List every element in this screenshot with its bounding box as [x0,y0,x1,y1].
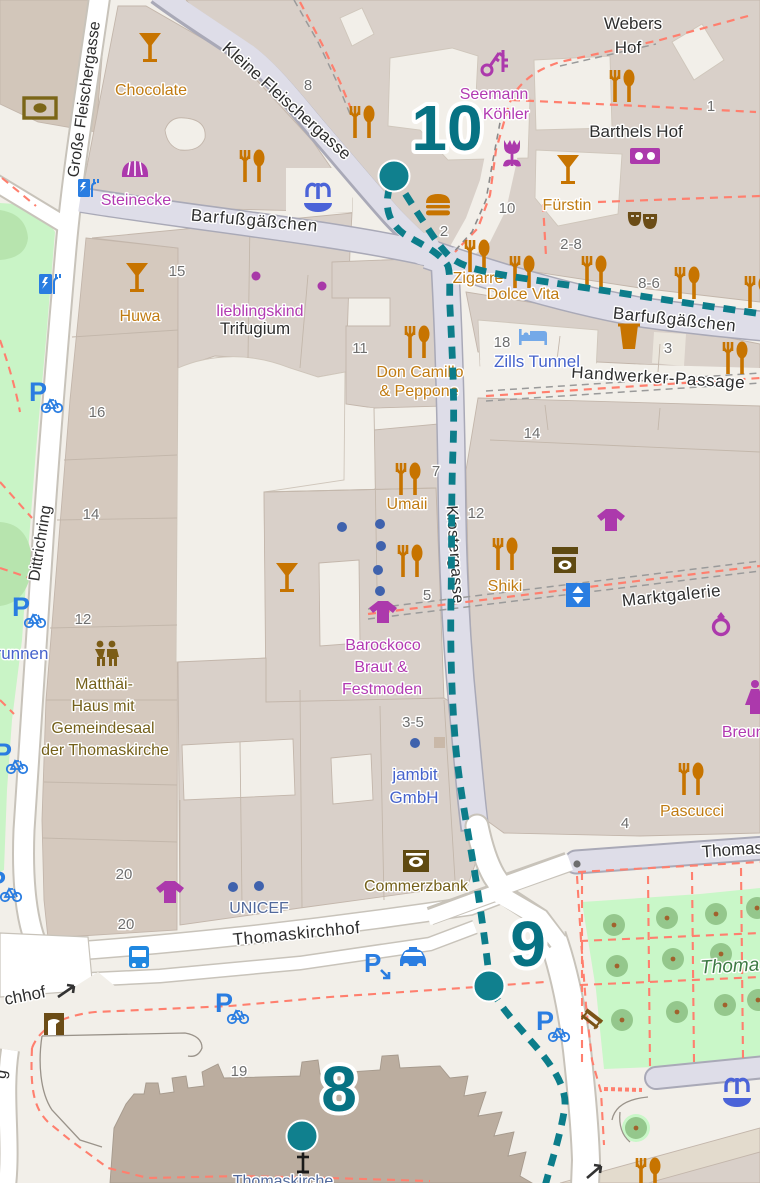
svg-text:4: 4 [621,815,629,832]
svg-text:5: 5 [423,587,431,604]
svg-text:12: 12 [75,611,92,628]
svg-text:3-5: 3-5 [402,714,424,731]
svg-text:GmbH: GmbH [389,788,438,807]
svg-text:Zills Tunnel: Zills Tunnel [494,352,580,371]
svg-text:Trifugium: Trifugium [220,319,290,338]
svg-text:runnen: runnen [0,644,48,663]
svg-text:Barthels Hof: Barthels Hof [589,122,683,141]
svg-text:2-8: 2-8 [560,236,582,253]
svg-text:11: 11 [352,340,368,357]
svg-text:Matthäi-: Matthäi- [75,676,133,693]
svg-text:Festmoden: Festmoden [342,681,422,698]
svg-text:Haus mit: Haus mit [71,698,135,715]
svg-text:& Peppone: & Peppone [379,383,458,400]
svg-text:8-6: 8-6 [638,275,660,292]
svg-text:Hof: Hof [615,38,642,57]
svg-text:7: 7 [432,463,440,480]
svg-text:Huwa: Huwa [120,308,161,325]
svg-text:14: 14 [83,506,100,523]
svg-text:Steinecke: Steinecke [101,192,171,209]
svg-text:10: 10 [499,200,516,217]
svg-text:15: 15 [169,263,186,280]
svg-text:Webers: Webers [604,14,662,33]
svg-text:UNICEF: UNICEF [229,900,289,917]
svg-text:jambit: jambit [391,765,438,784]
svg-text:16: 16 [89,404,106,421]
svg-text:20: 20 [116,866,133,883]
svg-text:1: 1 [707,98,715,115]
svg-text:Gemeindesaal: Gemeindesaal [51,720,154,737]
svg-text:der Thomaskirche: der Thomaskirche [41,742,169,759]
svg-text:18: 18 [494,334,511,351]
svg-text:Shiki: Shiki [488,578,523,595]
svg-text:Thoma: Thoma [700,954,760,978]
svg-text:Pascucci: Pascucci [660,803,724,820]
svg-text:Commerzbank: Commerzbank [364,878,469,895]
svg-text:Thomaskirche: Thomaskirche [233,1173,334,1183]
svg-text:Fürstin: Fürstin [543,197,592,214]
svg-text:9: 9 [510,908,546,980]
svg-text:3: 3 [664,340,672,357]
svg-text:20: 20 [118,916,135,933]
svg-text:8: 8 [321,1053,357,1125]
svg-text:Dolce Vita: Dolce Vita [487,286,560,303]
svg-text:Barockoco: Barockoco [345,637,421,654]
svg-text:Chocolate: Chocolate [115,82,187,99]
svg-text:12: 12 [468,505,485,522]
svg-text:Braut &: Braut & [354,659,408,676]
svg-text:10: 10 [411,92,482,164]
svg-text:19: 19 [231,1063,248,1080]
svg-text:Breuni: Breuni [722,724,760,741]
svg-text:8: 8 [304,77,312,94]
svg-text:14: 14 [524,425,541,442]
svg-text:lieblingskind: lieblingskind [216,303,303,320]
svg-text:Köhler: Köhler [483,106,530,123]
svg-text:Umaii: Umaii [387,496,428,513]
svg-text:2: 2 [440,223,448,240]
svg-text:P: P [364,948,381,978]
svg-text:Thomask: Thomask [701,838,760,862]
